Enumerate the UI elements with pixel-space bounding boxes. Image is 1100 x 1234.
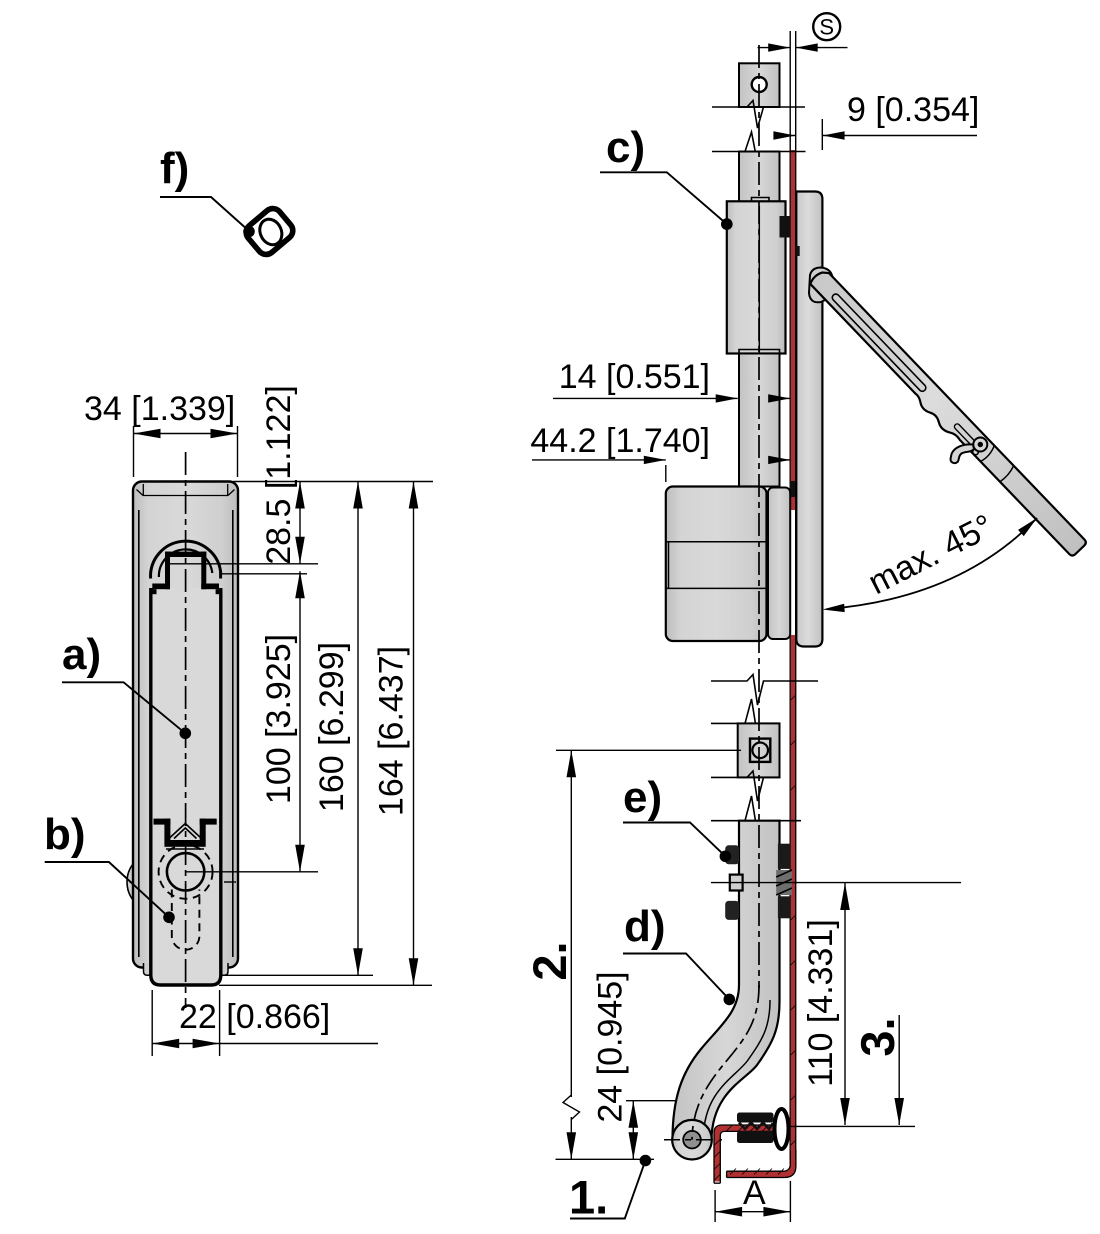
svg-text:34 [1.339]: 34 [1.339] bbox=[84, 390, 235, 428]
svg-text:d): d) bbox=[624, 902, 666, 951]
svg-text:1.: 1. bbox=[569, 1171, 608, 1224]
svg-text:22 [0.866]: 22 [0.866] bbox=[179, 998, 330, 1036]
svg-text:9 [0.354]: 9 [0.354] bbox=[847, 91, 979, 129]
svg-text:b): b) bbox=[44, 810, 86, 859]
svg-text:a): a) bbox=[62, 630, 101, 679]
svg-text:e): e) bbox=[623, 773, 662, 822]
svg-text:100 [3.925]: 100 [3.925] bbox=[260, 634, 298, 804]
svg-text:3.: 3. bbox=[851, 1017, 904, 1056]
svg-text:14 [0.551]: 14 [0.551] bbox=[559, 358, 710, 396]
svg-text:A: A bbox=[743, 1174, 766, 1212]
svg-text:44.2 [1.740]: 44.2 [1.740] bbox=[530, 422, 710, 460]
svg-text:28.5 [1.122]: 28.5 [1.122] bbox=[260, 385, 298, 565]
svg-text:24 [0.945]: 24 [0.945] bbox=[592, 971, 630, 1122]
svg-text:164 [6.437]: 164 [6.437] bbox=[373, 646, 411, 816]
svg-text:160 [6.299]: 160 [6.299] bbox=[313, 642, 351, 812]
svg-text:f): f) bbox=[160, 144, 189, 193]
svg-text:S: S bbox=[819, 15, 834, 40]
svg-text:110 [4.331]: 110 [4.331] bbox=[802, 919, 840, 1087]
svg-text:2.: 2. bbox=[523, 941, 576, 980]
svg-text:c): c) bbox=[606, 123, 645, 172]
